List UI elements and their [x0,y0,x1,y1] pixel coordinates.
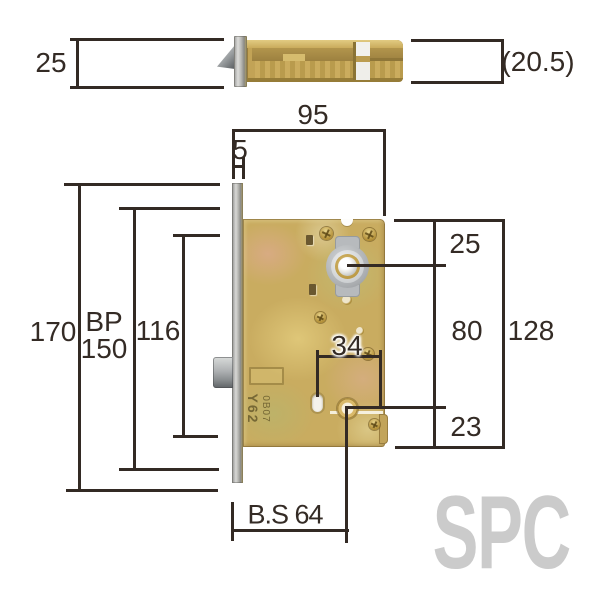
dim-116-vertical [182,234,185,438]
dim-right-top-extension [394,219,505,222]
dim-depth-bottom-line [411,81,503,84]
dim-label-backset: B.S 64 [247,502,322,529]
dim-95-right-tick [383,129,386,216]
faceplate-front-view [232,183,243,483]
dim-label-case-height: 128 [508,317,555,345]
dim-label-bp-value: 150 [81,335,128,363]
case-top-band [247,40,403,48]
case-white-spacer [356,42,370,80]
dim-128-vertical [502,219,505,449]
dim-170-bottom-tick [66,489,218,492]
dim-bp150-bottom-tick [119,468,219,471]
dim-label-screw-span: 116 [136,317,181,345]
lower-hole-leader-horizontal [347,406,446,409]
dim-right-inner-vertical [433,219,436,449]
dim-label-hub-width: 34 [331,332,362,360]
dim-right-bottom-extension [395,446,505,449]
latch-bolt-side-view [217,45,235,69]
dim-label-top-to-cylinder: 25 [449,230,480,258]
dim-label-side-height: 25 [35,49,66,77]
dim-label-body-width: 95 [297,101,328,129]
dim-34-right-tick [379,350,382,408]
dim-116-top-tick [173,234,220,237]
dim-bs64-left-tick [231,502,234,541]
dim-side25-bottom-line [70,86,224,89]
dim-170-top-tick [64,183,220,186]
dim-label-bp: BP [85,308,122,336]
lower-hole-leader-vertical [345,406,348,543]
dim-label-side-depth: (20.5) [501,48,574,76]
case-bottom-edge [247,78,403,82]
case-ribbed-band [255,61,403,79]
stamp-code-small: 0B07 [260,385,270,433]
case-end-cap-line [370,58,403,61]
stamp-code-large: Y62 [246,385,260,433]
lock-case-side-view [247,40,403,82]
dim-label-cylinder-to-hole: 80 [451,317,482,345]
dim-label-hole-to-bottom: 23 [450,413,481,441]
dim-side25-top-line [70,38,224,41]
cylinder-center-leader [347,264,446,267]
faceplate-side-view [234,36,247,87]
dim-label-faceplate-offset: 5 [232,136,248,164]
rect-hole-lower [309,284,316,295]
dim-depth-top-line [411,39,503,42]
latch-bolt-front-view [213,357,233,388]
latch-plate-outline [249,367,284,385]
dim-label-faceplate-height: 170 [30,318,77,346]
spc-watermark: SPC [433,494,570,572]
dim-34-left-tick [316,350,319,397]
factory-stamp: 0B07 Y62 [244,385,270,433]
dim-side25-vertical [76,38,79,89]
rect-hole-upper [306,235,313,245]
dim-116-bottom-tick [173,435,218,438]
dim-bp150-top-tick [119,207,220,210]
case-bottom-right-tab [379,414,388,444]
mortise-lock-dimension-diagram: 25 (20.5) 95 5 170 BP 150 116 [0,0,600,600]
